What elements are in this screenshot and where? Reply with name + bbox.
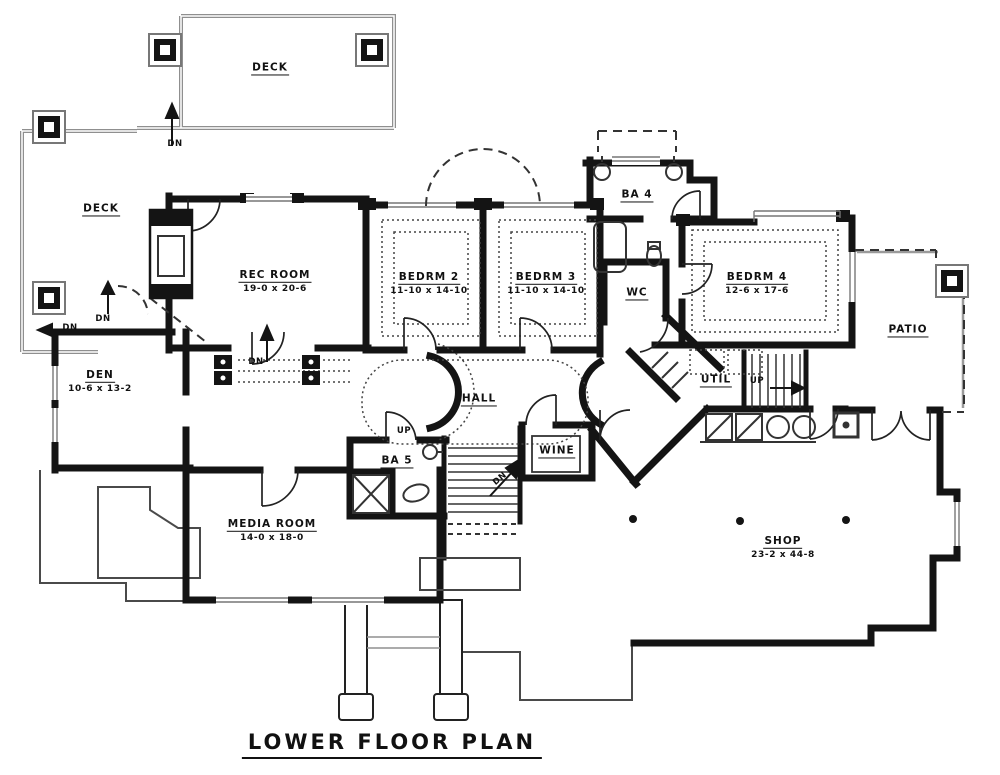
room-name: BEDRM 2 [398,271,460,285]
dashed-overhang-lines [118,131,964,534]
stair-label-dn-deck-top: DN [167,139,182,149]
room-label-den: DEN 10-6 x 13-2 [68,364,132,394]
column-post-icon [33,111,65,143]
column-post-icon [936,265,968,297]
room-name: WINE [538,444,575,458]
room-dims: 11-10 x 14-10 [507,286,584,296]
stair-label-dn-deck-left: DN [95,314,110,324]
column-post-icon [149,34,181,66]
room-label-shop: SHOP 23-2 x 44-8 [751,530,815,560]
column-post-icon [33,282,65,314]
page-title: LOWER FLOOR PLAN [242,730,542,759]
room-name: MEDIA ROOM [227,518,317,532]
room-name: UTIL [700,373,732,387]
room-label-hall: HALL [461,387,497,406]
floor-plan-canvas: DECK DECK REC ROOM 19-0 x 20-6 BEDRM 2 1… [0,0,1000,775]
room-dims: 14-0 x 18-0 [227,533,317,543]
floor-plan-drawing [0,0,1000,775]
stair-label-dn-deck-west: DN [62,323,77,333]
room-name: SHOP [764,535,803,549]
room-dims: 10-6 x 13-2 [68,384,132,394]
room-name: DEN [85,369,115,383]
room-name: REC ROOM [238,269,311,283]
room-name: DECK [251,61,289,75]
stair-label-dn-corridor: DN [248,357,263,367]
stairs-up-arrow-icon [770,382,804,394]
room-dims: 23-2 x 44-8 [751,550,815,560]
room-dims: 12-6 x 17-6 [725,286,789,296]
room-name: BA 4 [620,188,653,202]
room-label-wc: WC [625,281,648,300]
shop-post-dots [629,515,850,525]
stair-label-up-util: UP [750,376,764,386]
fireplace [150,210,192,298]
bath4-fixtures [594,156,682,272]
room-name: HALL [461,392,497,406]
stairs-down-arrow-icon [102,282,114,314]
room-name: BEDRM 3 [515,271,577,285]
room-name: DECK [82,202,120,216]
room-name: WC [625,286,648,300]
room-name: PATIO [887,323,928,337]
room-label-deck-top: DECK [251,56,289,75]
room-name: BA 5 [380,454,413,468]
room-label-ba4: BA 4 [620,183,653,202]
room-label-bedrm4: BEDRM 4 12-6 x 17-6 [725,266,789,296]
pier-footings [339,600,468,720]
room-dims: 11-10 x 14-10 [390,286,467,296]
room-dims: 19-0 x 20-6 [238,284,311,294]
room-label-rec-room: REC ROOM 19-0 x 20-6 [238,264,311,294]
room-label-bedrm2: BEDRM 2 11-10 x 14-10 [390,266,467,296]
stair-label-up-main: UP [397,426,411,436]
utility-fixtures [700,413,858,442]
room-label-wine: WINE [538,439,575,458]
room-label-patio: PATIO [887,318,928,337]
column-post-icon [356,34,388,66]
foundation-outline [40,470,632,700]
room-label-util: UTIL [700,368,732,387]
room-name: BEDRM 4 [726,271,788,285]
room-label-bedrm3: BEDRM 3 11-10 x 14-10 [507,266,584,296]
room-label-ba5: BA 5 [380,449,413,468]
room-label-media-room: MEDIA ROOM 14-0 x 18-0 [227,513,317,543]
room-label-deck-left: DECK [82,197,120,216]
